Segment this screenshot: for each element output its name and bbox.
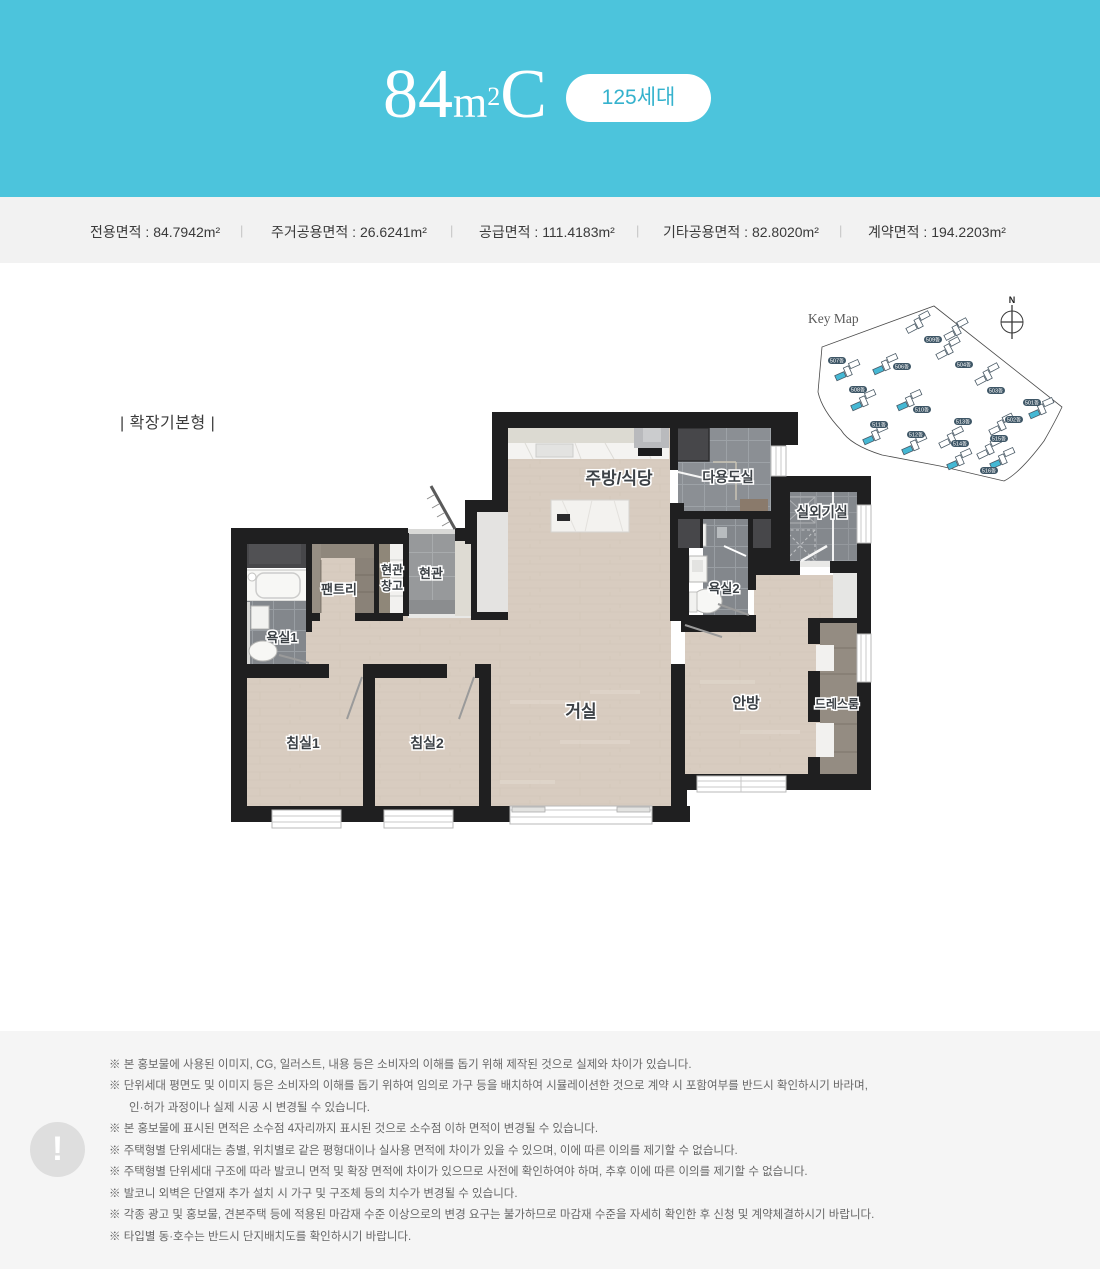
svg-text:안방: 안방 [732,694,760,712]
svg-text:다용도실: 다용도실 [702,469,754,485]
svg-text:503동: 503동 [989,387,1003,394]
svg-text:침실2: 침실2 [410,735,444,751]
svg-text:현관: 현관 [419,566,443,581]
svg-text:515동: 515동 [992,435,1006,442]
svg-text:실외기실: 실외기실 [796,504,848,520]
svg-text:511동: 511동 [872,421,886,428]
svg-text:512동: 512동 [909,431,923,438]
svg-text:Key Map: Key Map [808,311,859,326]
svg-text:욕실2: 욕실2 [708,581,739,596]
svg-text:침실1: 침실1 [286,735,320,751]
svg-text:516동: 516동 [982,467,996,474]
svg-text:506동: 506동 [895,363,909,370]
svg-text:창고: 창고 [381,578,403,593]
svg-text:509동: 509동 [926,336,940,343]
svg-text:502동: 502동 [1007,416,1021,423]
svg-text:거실: 거실 [565,702,596,721]
svg-text:508동: 508동 [851,386,865,393]
svg-text:507동: 507동 [830,357,844,364]
svg-text:510동: 510동 [915,406,929,413]
svg-text:504동: 504동 [957,361,971,368]
svg-text:N: N [1009,295,1016,305]
svg-text:501동: 501동 [1025,399,1039,406]
svg-text:욕실1: 욕실1 [266,630,297,645]
svg-text:현관: 현관 [381,562,403,577]
svg-text:주방/식당: 주방/식당 [585,469,653,488]
svg-text:513동: 513동 [956,418,970,425]
svg-text:514동: 514동 [953,440,967,447]
svg-text:드레스룸: 드레스룸 [815,696,859,711]
svg-text:팬트리: 팬트리 [321,582,357,597]
